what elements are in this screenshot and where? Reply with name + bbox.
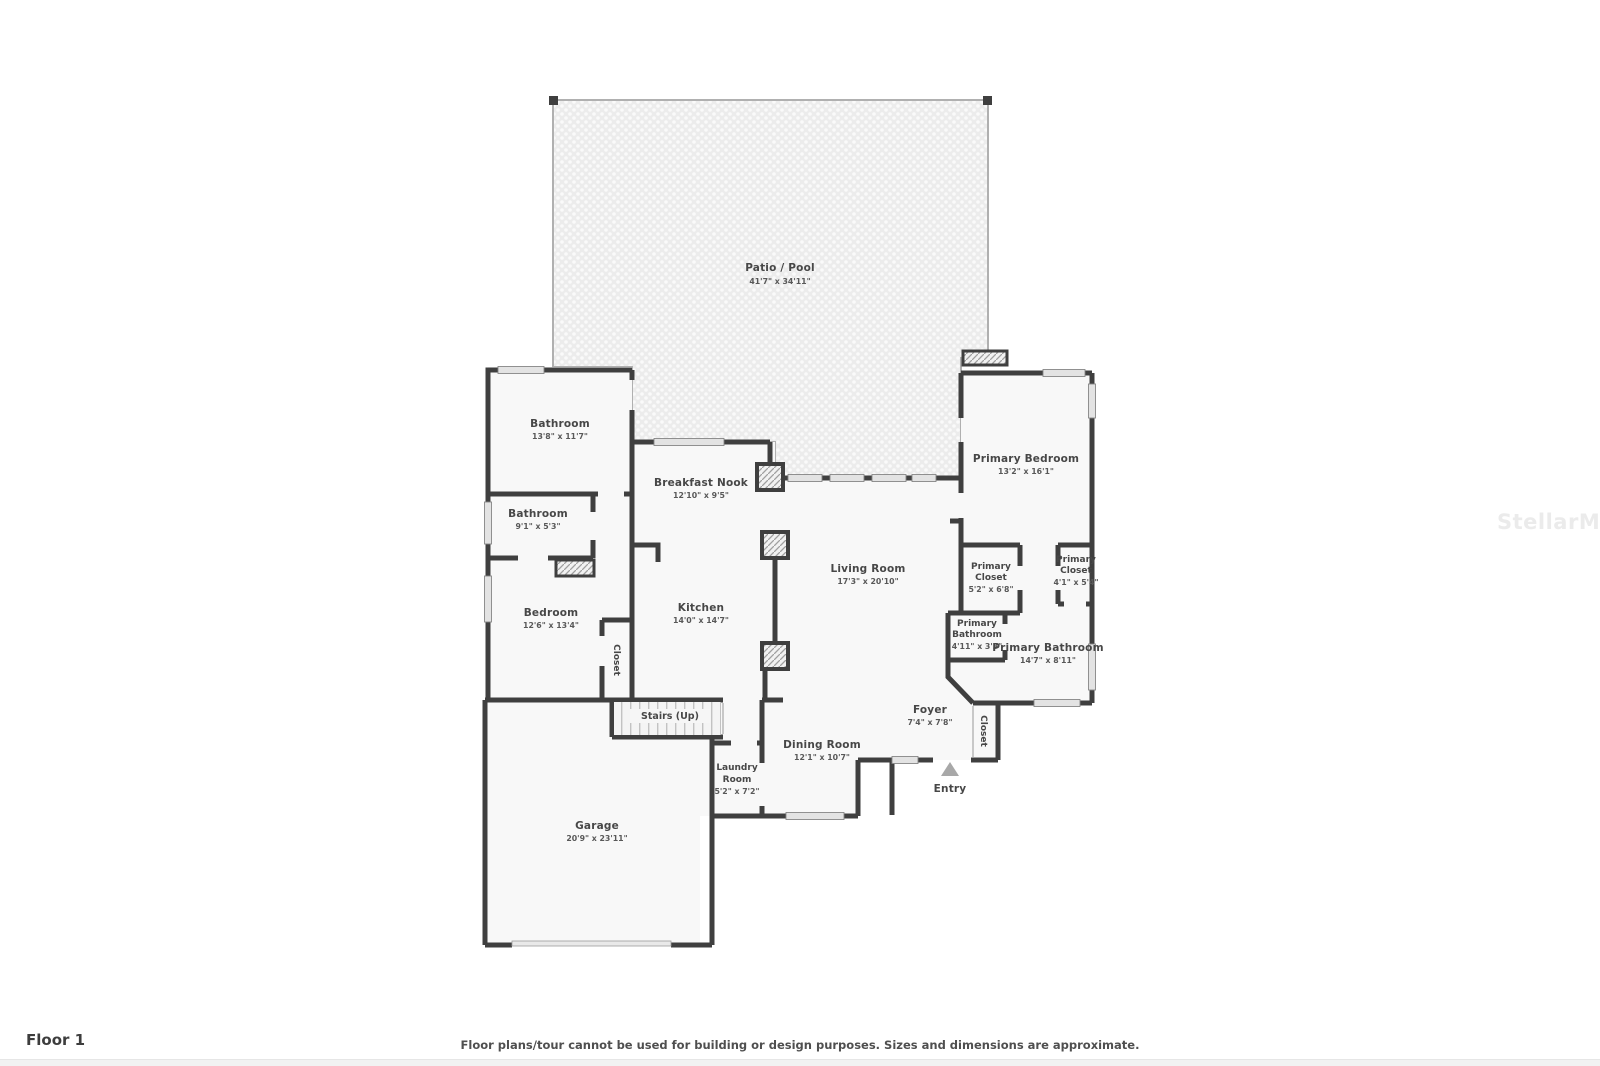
column <box>762 532 788 558</box>
bedroom-threshold <box>556 560 594 576</box>
column <box>762 643 788 669</box>
window <box>892 757 918 764</box>
primary-bedroom-threshold <box>963 351 1007 365</box>
window <box>1043 370 1085 377</box>
entry-arrow-icon <box>941 762 959 776</box>
dining-room-label: Dining Room <box>783 739 861 751</box>
patio-dims: 41'7" x 34'11" <box>749 277 810 286</box>
patio-label: Patio / Pool <box>745 262 815 274</box>
primary-bathroom-large-label: Primary Bathroom <box>992 642 1104 654</box>
patio-corner-tick <box>983 96 992 105</box>
laundry-room-label: Laundry <box>716 763 758 773</box>
bathroom-large-dims: 13'8" x 11'7" <box>532 432 588 441</box>
primary-closet-right-dims: 4'1" x 5'4" <box>1053 578 1098 587</box>
primary-closet-right-label: Primary <box>1056 555 1096 565</box>
primary-closet-left-label2: Closet <box>975 573 1007 583</box>
primary-closet-right-label2: Closet <box>1060 566 1092 576</box>
patio-corner-tick <box>549 96 558 105</box>
foyer-dims: 7'4" x 7'8" <box>907 718 952 727</box>
stairs-label: Stairs (Up) <box>641 711 699 722</box>
bedroom-dims: 12'6" x 13'4" <box>523 621 579 630</box>
primary-closet-left-label: Primary <box>971 562 1011 572</box>
window <box>788 475 822 482</box>
window <box>872 475 906 482</box>
window <box>786 813 844 820</box>
floor-plan: Patio / Pool 41'7" x 34'11" Bathroom 13'… <box>0 0 1600 1066</box>
primary-bedroom-label: Primary Bedroom <box>973 453 1079 465</box>
foyer-closet-label: Closet <box>978 715 988 747</box>
foyer-label: Foyer <box>913 704 948 716</box>
breakfast-nook-dims: 12'10" x 9'5" <box>673 491 729 500</box>
kitchen-label: Kitchen <box>678 602 724 614</box>
bedroom-closet-label: Closet <box>611 644 621 676</box>
entry-label: Entry <box>934 783 967 795</box>
window <box>1034 700 1080 707</box>
bottom-strip <box>0 1059 1600 1066</box>
garage-dims: 20'9" x 23'11" <box>566 834 627 843</box>
bathroom-small-label: Bathroom <box>508 508 568 520</box>
bedroom-label: Bedroom <box>524 607 579 619</box>
laundry-room-label2: Room <box>723 775 752 785</box>
primary-bathroom-large-dims: 14'7" x 8'11" <box>1020 656 1076 665</box>
window <box>830 475 864 482</box>
living-room-label: Living Room <box>830 563 905 575</box>
window <box>498 367 544 374</box>
garage-label: Garage <box>575 820 619 832</box>
column <box>757 464 783 490</box>
garage-door <box>512 941 671 946</box>
breakfast-nook-label: Breakfast Nook <box>654 477 749 489</box>
primary-bedroom-dims: 13'2" x 16'1" <box>998 467 1054 476</box>
window <box>485 502 492 544</box>
primary-bathroom-small-label2: Bathroom <box>952 630 1002 640</box>
window <box>1089 384 1096 418</box>
living-room-dims: 17'3" x 20'10" <box>837 577 898 586</box>
window <box>485 576 492 622</box>
disclaimer-text: Floor plans/tour cannot be used for buil… <box>0 1038 1600 1052</box>
laundry-room-dims: 5'2" x 7'2" <box>714 787 759 796</box>
bathroom-small-dims: 9'1" x 5'3" <box>515 522 560 531</box>
window <box>654 439 724 446</box>
primary-bathroom-small-label: Primary <box>957 619 997 629</box>
bathroom-large-label: Bathroom <box>530 418 590 430</box>
kitchen-dims: 14'0" x 14'7" <box>673 616 729 625</box>
primary-closet-left-dims: 5'2" x 6'8" <box>968 585 1013 594</box>
floor-plan-page: Patio / Pool 41'7" x 34'11" Bathroom 13'… <box>0 0 1600 1066</box>
window <box>912 475 936 482</box>
dining-room-dims: 12'1" x 10'7" <box>794 753 850 762</box>
stellar-mls-watermark: StellarMLS <box>1497 510 1600 534</box>
